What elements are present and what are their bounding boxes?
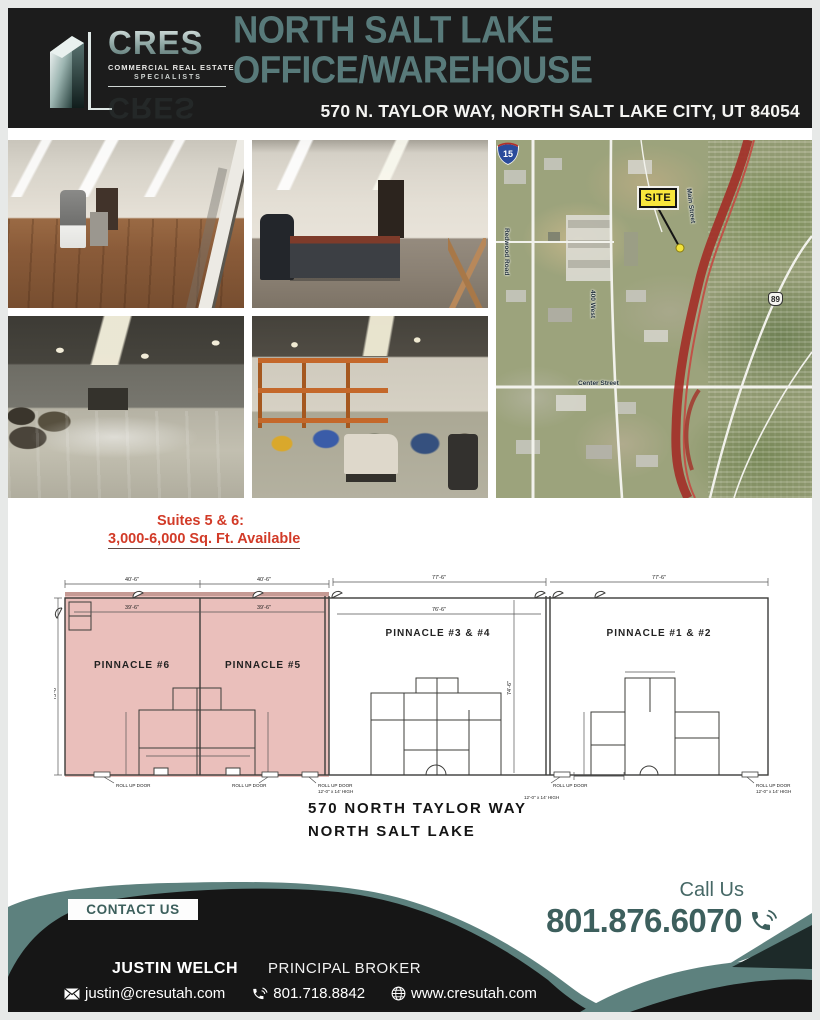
aerial-site-map: SITE Redwood Road 400 West Main Street C… bbox=[496, 140, 812, 498]
unit-label-pinnacle-5: PINNACLE #5 bbox=[225, 660, 301, 671]
svg-text:ROLL UP DOOR: ROLL UP DOOR bbox=[318, 783, 353, 788]
svg-text:ROLL UP DOOR: ROLL UP DOOR bbox=[756, 783, 791, 788]
ceiling-lights bbox=[252, 140, 488, 190]
svg-text:40'-6": 40'-6" bbox=[125, 577, 139, 583]
door bbox=[378, 180, 404, 238]
svg-text:77'-6": 77'-6" bbox=[432, 575, 446, 581]
wood-ladder bbox=[448, 238, 486, 308]
svg-text:76'-6": 76'-6" bbox=[432, 607, 446, 613]
route-89-shield: 89 bbox=[768, 292, 783, 306]
agent-name: JUSTIN WELCH bbox=[112, 960, 238, 978]
svg-text:40'-6": 40'-6" bbox=[257, 577, 271, 583]
logo-acronym: CRES bbox=[108, 26, 228, 59]
photo-gallery: SITE Redwood Road 400 West Main Street C… bbox=[8, 140, 812, 498]
svg-text:75'-0": 75'-0" bbox=[54, 686, 58, 700]
svg-text:74'-6": 74'-6" bbox=[507, 681, 513, 695]
unit-label-pinnacle-3-4: PINNACLE #3 & #4 bbox=[386, 628, 491, 639]
header: CRES COMMERCIAL REAL ESTATE SPECIALISTS … bbox=[8, 8, 812, 128]
footer: CONTACT US Call Us 801.876.6070 JUSTIN W… bbox=[8, 855, 812, 1012]
caption-line2: NORTH SALT LAKE bbox=[308, 821, 527, 844]
bay-door bbox=[88, 388, 128, 410]
photo-warehouse-bay bbox=[8, 316, 244, 498]
phone-small-icon bbox=[251, 986, 268, 1002]
svg-text:12'-0" x 14' HIGH: 12'-0" x 14' HIGH bbox=[318, 789, 353, 794]
svg-text:ROLL UP DOOR: ROLL UP DOOR bbox=[553, 783, 588, 788]
availability-line1: Suites 5 & 6: bbox=[108, 512, 293, 530]
call-us-block: Call Us 801.876.6070 bbox=[546, 879, 778, 940]
office-chair bbox=[260, 214, 294, 280]
street-label-redwood: Redwood Road bbox=[503, 228, 510, 275]
globe-icon bbox=[391, 986, 406, 1001]
website-item: www.cresutah.com bbox=[391, 985, 537, 1002]
svg-text:ROLL UP DOOR: ROLL UP DOOR bbox=[116, 783, 151, 788]
building-icon bbox=[36, 16, 114, 120]
skylights bbox=[252, 316, 488, 356]
street-label-400-west: 400 West bbox=[589, 290, 596, 318]
call-us-label: Call Us bbox=[546, 879, 744, 902]
agent-email: justin@cresutah.com bbox=[85, 985, 225, 1002]
photo-warehouse-racking bbox=[252, 316, 488, 498]
logo-reflection: CRES bbox=[108, 92, 195, 122]
page-title: NORTH SALT LAKE OFFICE/WAREHOUSE bbox=[233, 11, 800, 90]
flyer-page: CRES COMMERCIAL REAL ESTATE SPECIALISTS … bbox=[8, 8, 812, 1012]
property-address: 570 N. TAYLOR WAY, NORTH SALT LAKE CITY,… bbox=[321, 101, 801, 122]
email-item: justin@cresutah.com bbox=[64, 985, 225, 1002]
envelope-icon bbox=[64, 988, 80, 1000]
interstate-15-shield: 15 bbox=[496, 140, 520, 166]
logo-rule bbox=[108, 86, 226, 87]
agent-phone: 801.718.8842 bbox=[273, 985, 365, 1002]
availability-line2: 3,000-6,000 Sq. Ft. Available bbox=[108, 531, 300, 549]
unit-label-pinnacle-6: PINNACLE #6 bbox=[94, 660, 170, 671]
polished-floor bbox=[8, 411, 244, 498]
ceiling-lights bbox=[8, 140, 244, 197]
logo-tagline-2: SPECIALISTS bbox=[108, 74, 228, 81]
street-label-center: Center Street bbox=[578, 380, 619, 387]
workbench bbox=[344, 434, 398, 474]
site-marker-label: SITE bbox=[639, 188, 677, 208]
photo-office-desk bbox=[252, 140, 488, 308]
floor-plan: 40'-6" 40'-6" 77'-6" 77'-6" 39'-6" 39'-6… bbox=[54, 560, 812, 805]
caption-line1: 570 NORTH TAYLOR WAY bbox=[308, 798, 527, 821]
svg-text:39'-6": 39'-6" bbox=[125, 605, 139, 611]
svg-text:15: 15 bbox=[503, 149, 513, 159]
logo-text: CRES COMMERCIAL REAL ESTATE SPECIALISTS bbox=[108, 26, 228, 81]
barrel bbox=[448, 434, 478, 490]
equipment bbox=[60, 190, 86, 248]
photo-office-equipment bbox=[8, 140, 244, 308]
agent-role: PRINCIPAL BROKER bbox=[268, 960, 421, 977]
phone-item: 801.718.8842 bbox=[251, 985, 365, 1002]
equipment-stand bbox=[90, 212, 108, 246]
plan-caption: 570 NORTH TAYLOR WAY NORTH SALT LAKE bbox=[308, 798, 527, 843]
skylights bbox=[8, 316, 244, 365]
svg-text:39'-6": 39'-6" bbox=[257, 605, 271, 611]
svg-text:77'-6": 77'-6" bbox=[652, 575, 666, 581]
main-phone-number: 801.876.6070 bbox=[546, 902, 742, 940]
svg-text:ROLL UP DOOR: ROLL UP DOOR bbox=[232, 783, 267, 788]
contact-us-badge: CONTACT US bbox=[68, 899, 198, 920]
phone-ring-icon bbox=[748, 907, 778, 935]
unit-label-pinnacle-1-2: PINNACLE #1 & #2 bbox=[607, 628, 712, 639]
logo-tagline-1: COMMERCIAL REAL ESTATE bbox=[108, 63, 228, 72]
availability-heading: Suites 5 & 6: 3,000-6,000 Sq. Ft. Availa… bbox=[108, 512, 293, 548]
agent-block: JUSTIN WELCH PRINCIPAL BROKER justin@cre… bbox=[64, 960, 534, 1002]
header-text-block: NORTH SALT LAKE OFFICE/WAREHOUSE 570 N. … bbox=[233, 8, 812, 128]
cres-logo: CRES COMMERCIAL REAL ESTATE SPECIALISTS … bbox=[8, 8, 233, 128]
svg-text:12'-0" x 14' HIGH: 12'-0" x 14' HIGH bbox=[524, 795, 559, 800]
agent-website: www.cresutah.com bbox=[411, 985, 537, 1002]
svg-text:12'-0" x 14' HIGH: 12'-0" x 14' HIGH bbox=[756, 789, 791, 794]
desk bbox=[290, 236, 400, 278]
